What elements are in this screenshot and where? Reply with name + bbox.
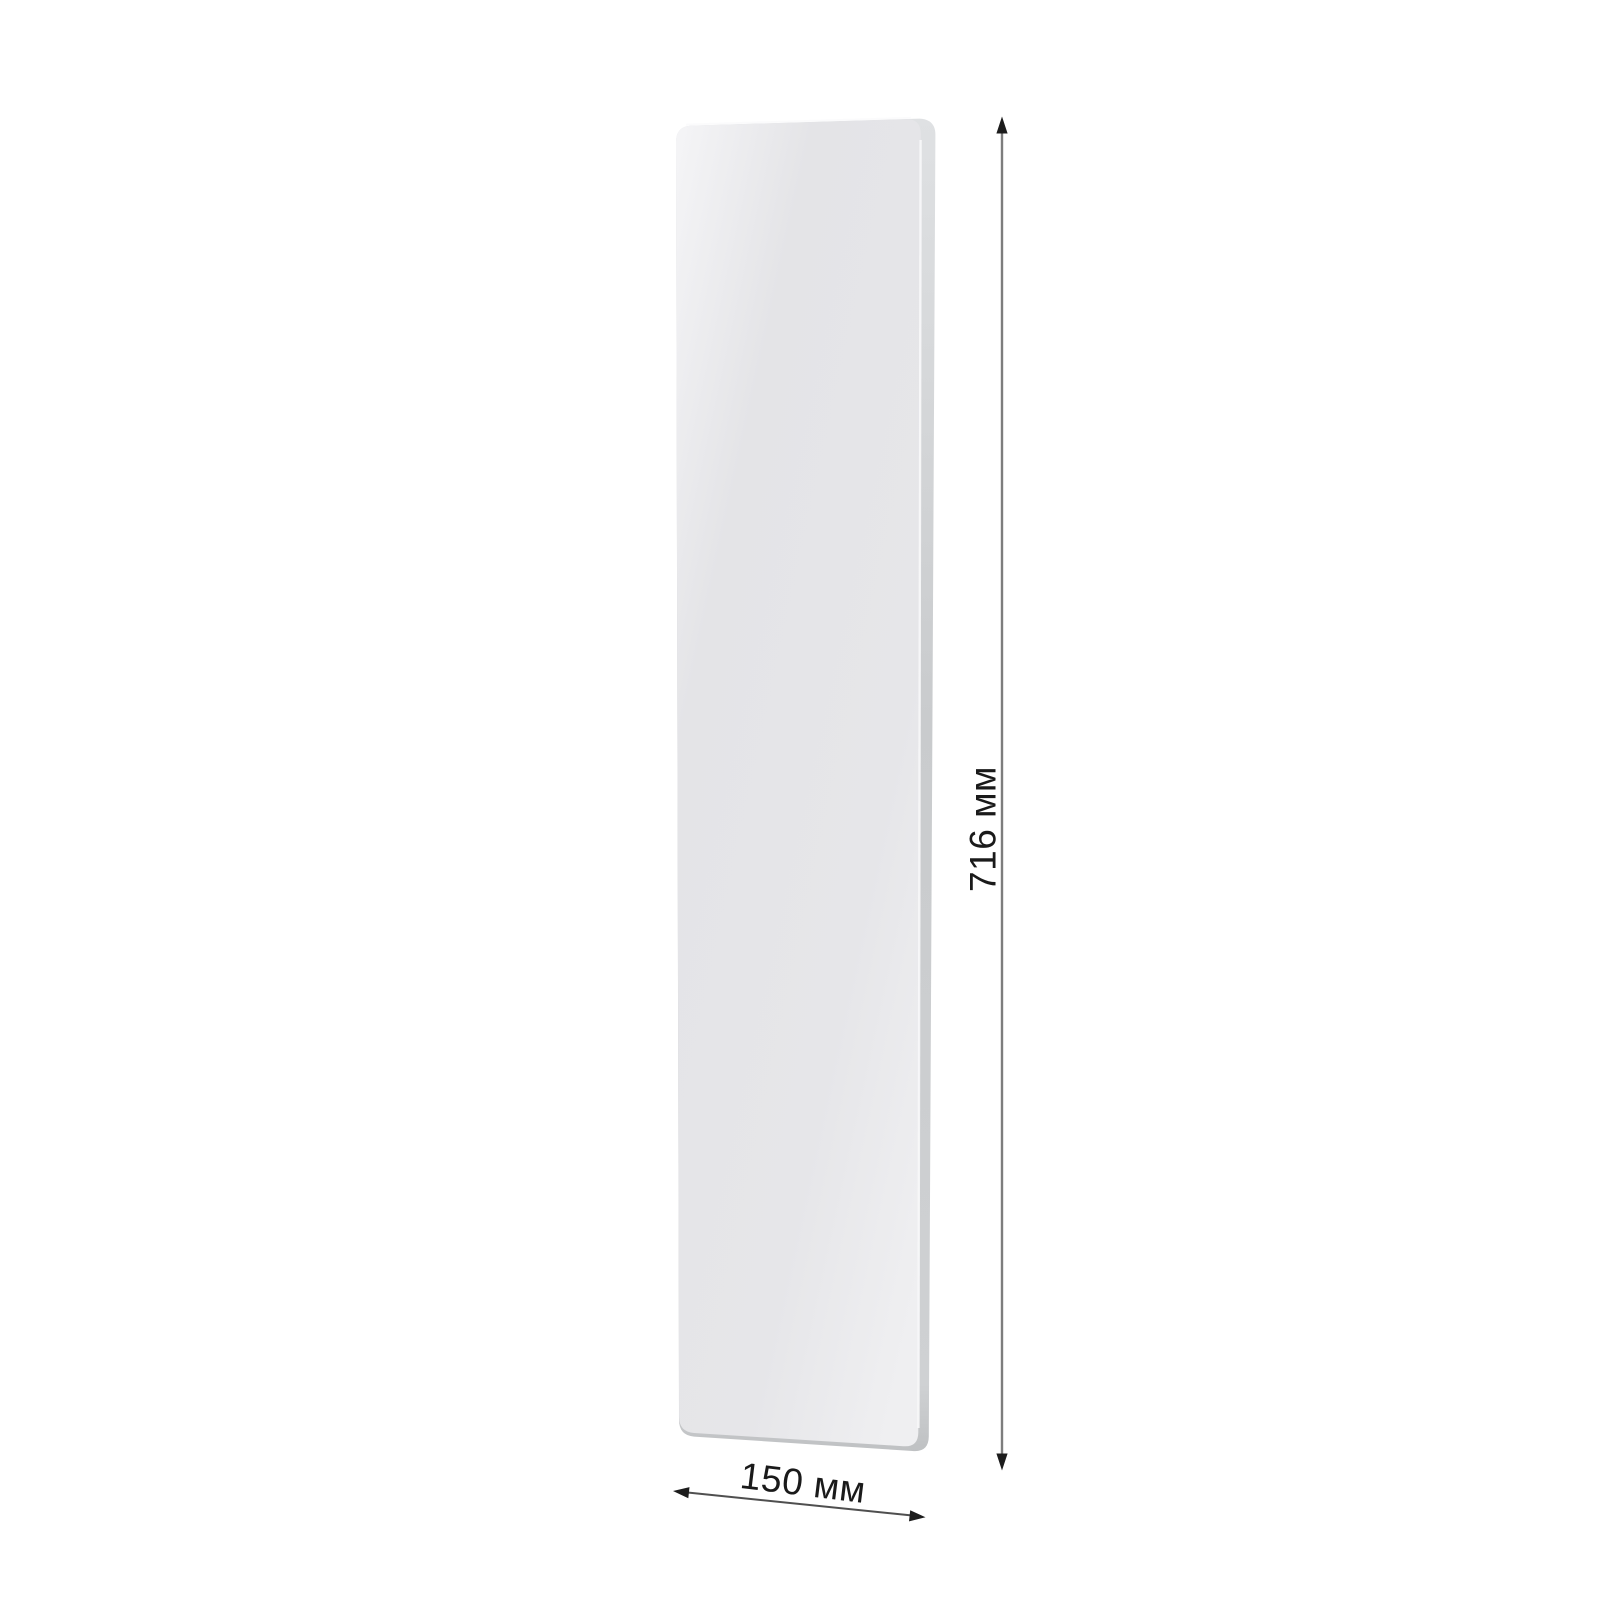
product-dimension-diagram: 716 мм 150 мм: [0, 0, 1600, 1600]
panel-front-face: [676, 119, 921, 1446]
arrowhead-left-icon: [673, 1487, 690, 1498]
panel-dimension-drawing: [0, 0, 1600, 1600]
arrowhead-up-icon: [996, 117, 1007, 134]
arrowhead-down-icon: [996, 1454, 1007, 1471]
arrowhead-right-icon: [909, 1510, 926, 1521]
height-dimension-label: 716 мм: [965, 766, 1002, 892]
